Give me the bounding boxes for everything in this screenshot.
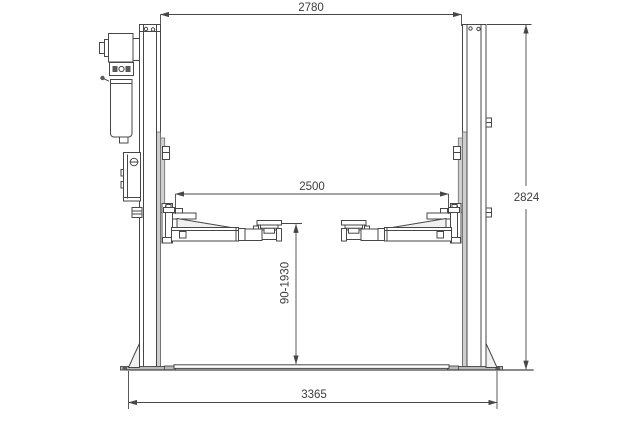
- column-side-tab: [486, 118, 492, 127]
- dimension-label: 2824: [514, 192, 540, 204]
- dimension-column-height: 2824: [487, 25, 540, 370]
- dimension-label: 2780: [298, 2, 324, 14]
- oil-tank: [111, 80, 133, 144]
- hydraulic-pump: [100, 63, 133, 82]
- dimension-lift-height-range: 90-1930: [280, 224, 303, 365]
- dimension-label: 90-1930: [280, 262, 292, 304]
- dimension-label: 2500: [299, 181, 325, 193]
- junction-bracket: [132, 208, 142, 218]
- bolt-hole: [469, 27, 472, 30]
- left-swing-arm: [161, 138, 282, 243]
- left-column: [140, 25, 161, 371]
- technical-drawing-canvas: 2780 2500 2824 90-1930 3365: [0, 0, 640, 427]
- dimension-arm-span: 2500: [176, 181, 449, 214]
- gusset-left: [129, 344, 140, 368]
- gusset-right: [486, 344, 497, 368]
- right-column: [463, 25, 492, 371]
- control-box: [121, 153, 141, 202]
- dimension-top-width: 2780: [161, 2, 462, 26]
- right-swing-arm: [342, 138, 463, 243]
- bolt-hole: [477, 27, 480, 30]
- motor-unit: [100, 34, 140, 63]
- floor-cover-plate: [165, 365, 459, 370]
- bolt-hole: [151, 28, 154, 31]
- column-side-tab: [486, 208, 492, 217]
- dimension-label: 3365: [301, 389, 327, 401]
- dimension-base-width: 3365: [129, 371, 498, 409]
- drain-fitting: [100, 76, 104, 80]
- bolt-hole: [144, 27, 147, 30]
